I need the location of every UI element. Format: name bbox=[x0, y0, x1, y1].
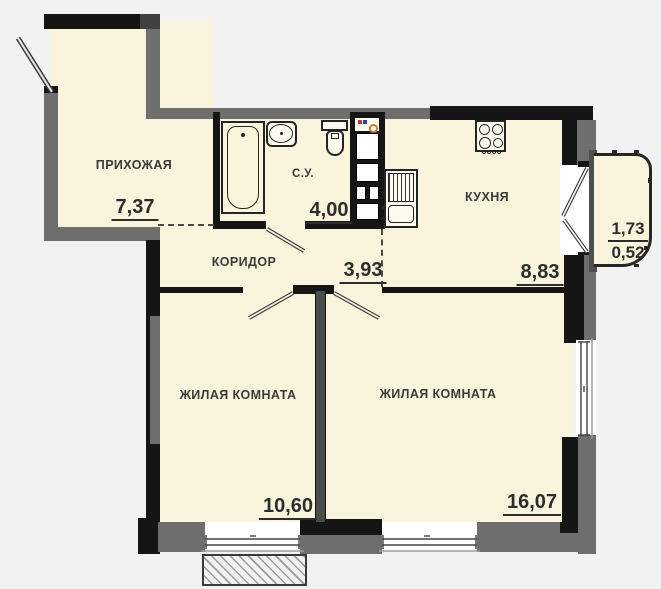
balcony-glazing-tick bbox=[634, 264, 639, 267]
wall-segment bbox=[44, 227, 160, 241]
shaft-cell bbox=[369, 186, 379, 200]
room-area-hallway: 7,37 bbox=[112, 197, 159, 221]
kitchen-sink-drainboard bbox=[388, 173, 414, 202]
room-area-bathroom: 4,00 bbox=[306, 200, 353, 224]
wall-segment bbox=[300, 519, 382, 535]
balcony-glazing-tick bbox=[612, 264, 617, 267]
external-slab-hatched bbox=[202, 554, 307, 586]
room-area-living1: 10,60 bbox=[259, 496, 317, 520]
bathtub-inner bbox=[227, 126, 259, 209]
entrance-door-leaf bbox=[18, 38, 52, 92]
balcony-area-fraction: 1,73 0,52 bbox=[600, 218, 656, 263]
balcony-glazing-tick bbox=[648, 178, 651, 183]
stove-knob bbox=[487, 150, 491, 154]
wall-segment bbox=[562, 118, 577, 165]
wall-segment bbox=[140, 14, 160, 29]
balcony-area-counted: 0,52 bbox=[611, 243, 644, 262]
stove-knob bbox=[497, 150, 501, 154]
room-area-living2: 16,07 bbox=[503, 492, 561, 516]
room-label-living2: ЖИЛАЯ КОМНАТА bbox=[380, 388, 497, 401]
wall-segment bbox=[213, 221, 266, 229]
window bbox=[382, 522, 477, 552]
room-label-bathroom: С.У. bbox=[292, 169, 314, 181]
wall-segment bbox=[562, 437, 578, 527]
toilet-flush bbox=[331, 133, 339, 139]
cold-water-riser-icon bbox=[363, 120, 367, 124]
wall-segment bbox=[44, 93, 58, 240]
sink-drain bbox=[280, 132, 283, 135]
shaft-cell bbox=[356, 163, 379, 182]
wall-segment bbox=[382, 287, 564, 293]
room-label-hallway: ПРИХОЖАЯ bbox=[96, 159, 172, 172]
gas-riser-icon bbox=[369, 124, 378, 133]
shaft-cell bbox=[356, 133, 379, 160]
balcony-area-total: 1,73 bbox=[608, 218, 647, 242]
balcony-glazing-tick bbox=[649, 200, 652, 205]
wall-segment bbox=[158, 287, 243, 293]
floor-plan: ПРИХОЖАЯ 7,37 С.У. 4,00 КОРИДОР 3,93 КУХ… bbox=[0, 0, 661, 589]
stove-knob bbox=[492, 150, 496, 154]
room-area-corridor: 3,93 bbox=[340, 260, 387, 284]
room-area-kitchen: 8,83 bbox=[517, 262, 564, 286]
wall-segment bbox=[564, 255, 584, 343]
window bbox=[576, 340, 596, 437]
wall-segment bbox=[213, 112, 220, 229]
room-label-corridor: КОРИДОР bbox=[212, 256, 276, 269]
shaft-cell bbox=[356, 203, 379, 220]
kitchen-sink-bowl bbox=[388, 205, 414, 223]
balcony-glazing-tick bbox=[612, 150, 617, 153]
stove-burner bbox=[492, 124, 503, 135]
balcony-glazing-tick bbox=[634, 150, 639, 153]
wall-segment bbox=[578, 435, 596, 554]
stove-burner bbox=[479, 137, 491, 149]
wall-segment bbox=[44, 86, 58, 93]
bathtub-drain bbox=[241, 133, 245, 137]
stove-burner bbox=[479, 124, 490, 135]
wall-segment bbox=[44, 14, 140, 29]
wall-segment bbox=[158, 522, 205, 552]
zone-boundary-dashed bbox=[158, 224, 214, 226]
room-label-kitchen: КУХНЯ bbox=[465, 191, 509, 204]
hot-water-riser-icon bbox=[358, 120, 362, 124]
wall-segment bbox=[315, 291, 326, 522]
room-fill-living1 bbox=[158, 290, 320, 526]
window bbox=[205, 522, 300, 552]
wall-segment bbox=[150, 316, 160, 444]
wall-segment bbox=[146, 108, 438, 119]
door-post bbox=[293, 285, 334, 294]
wall-segment bbox=[300, 535, 382, 554]
room-label-living1: ЖИЛАЯ КОМНАТА bbox=[180, 389, 297, 402]
wall-segment bbox=[146, 29, 160, 110]
shaft-cell bbox=[356, 186, 366, 200]
stove-burner bbox=[493, 138, 503, 148]
stove-knob bbox=[482, 150, 486, 154]
wall-segment bbox=[138, 518, 160, 554]
